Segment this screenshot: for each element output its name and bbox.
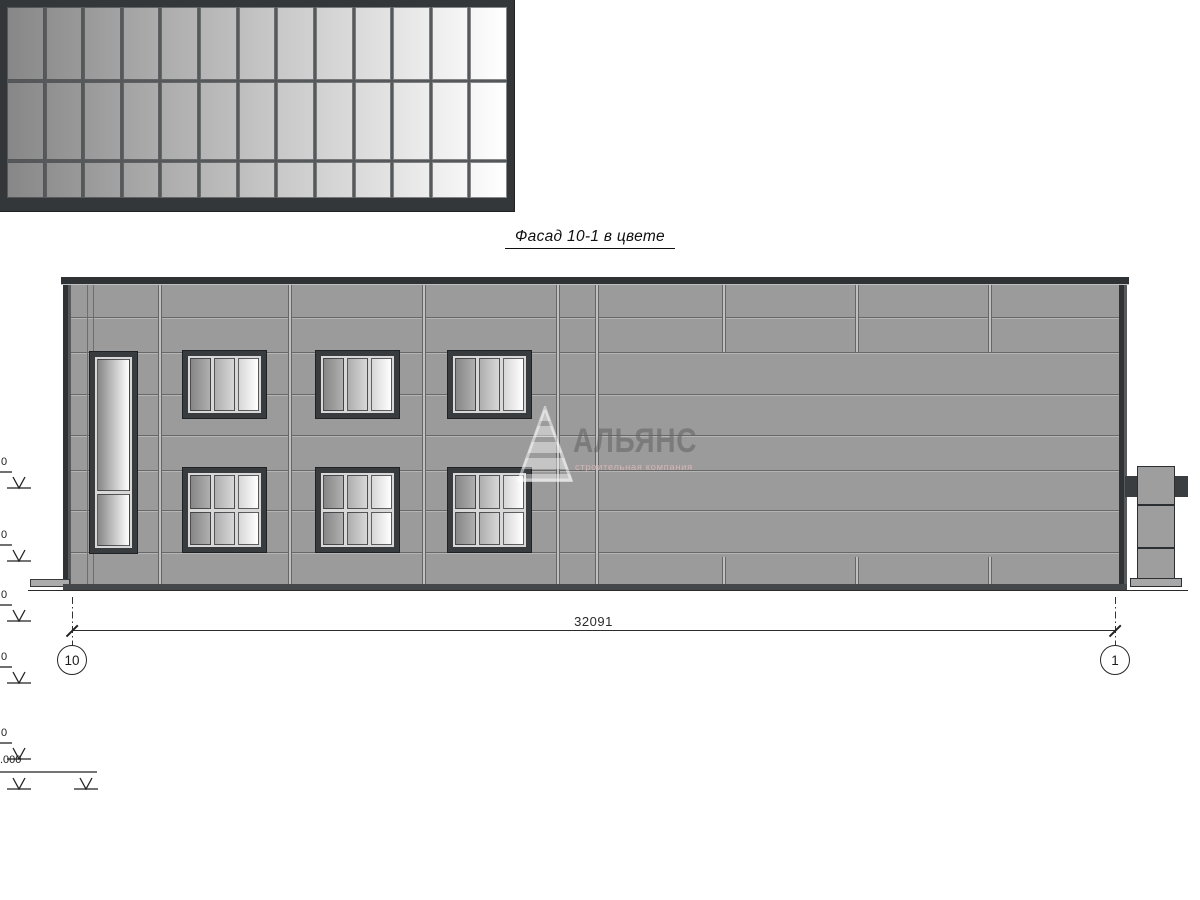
curtain-glass-pane — [7, 82, 44, 159]
glass-pane — [347, 512, 368, 546]
curtain-glass-pane — [316, 82, 353, 159]
panel-joint-vertical — [988, 557, 992, 584]
glass-pane — [238, 358, 259, 411]
panel-joint-vertical — [158, 284, 162, 584]
glass-pane — [97, 359, 130, 491]
ground-line — [28, 590, 1188, 591]
curtain-glass-pane — [46, 82, 83, 159]
curtain-glass-pane — [239, 82, 276, 159]
curtain-glass-pane — [161, 162, 198, 198]
glass-pane — [371, 358, 392, 411]
panel-joint-vertical — [722, 557, 726, 584]
glass-pane — [214, 475, 235, 509]
facade-base-strip — [63, 584, 1127, 590]
curtain-glass-pane — [123, 82, 160, 159]
window-grid — [453, 356, 526, 413]
curtain-glass-pane — [46, 7, 83, 80]
curtain-glass-pane — [277, 82, 314, 159]
glass-pane — [238, 475, 259, 509]
curtain-glass-pane — [432, 7, 469, 80]
glass-pane — [455, 475, 476, 509]
building-corner-right — [1119, 284, 1127, 584]
curtain-glass-pane — [161, 82, 198, 159]
curtain-glass-pane — [7, 162, 44, 198]
window-grid — [321, 356, 394, 413]
curtain-glass-pane — [123, 7, 160, 80]
window-grid — [453, 473, 526, 547]
building-corner-left — [63, 284, 71, 584]
curtain-glass-pane — [277, 7, 314, 80]
curtain-glass-pane — [123, 162, 160, 198]
glass-pane — [371, 512, 392, 546]
elevation-marker-left: 0 — [0, 464, 36, 492]
panel-joint-vertical — [855, 284, 859, 352]
glass-pane — [238, 512, 259, 546]
curtain-glass-pane — [46, 162, 83, 198]
glass-pane — [323, 475, 344, 509]
dimension-line — [72, 630, 1115, 631]
axis-bubble-10: 10 — [57, 645, 87, 675]
curtain-glass-pane — [470, 82, 507, 159]
curtain-glass-pane — [393, 82, 430, 159]
curtain-glass-pane — [200, 7, 237, 80]
curtain-glass-pane — [470, 162, 507, 198]
panel-joint-vertical — [556, 284, 560, 584]
curtain-glass-pane — [200, 82, 237, 159]
glass-pane — [190, 475, 211, 509]
glass-pane — [190, 512, 211, 546]
window-grid — [95, 357, 132, 548]
glass-pane — [503, 475, 524, 509]
curtain-glass-pane — [393, 7, 430, 80]
curtain-glass-pane — [84, 162, 121, 198]
curtain-glass-pane — [393, 162, 430, 198]
dimension-value: 32091 — [72, 614, 1115, 629]
window — [448, 468, 531, 552]
window-grid — [321, 473, 394, 547]
window — [183, 351, 266, 418]
window-grid — [188, 356, 261, 413]
chimney-column — [1137, 466, 1175, 583]
glass-pane — [479, 475, 500, 509]
glass-pane — [323, 358, 344, 411]
panel-joint-thin — [87, 284, 88, 584]
curtain-glass-pane — [84, 7, 121, 80]
drawing-title-wrap: Фасад 10-1 в цвете — [400, 228, 780, 249]
chimney-bracket-right — [1175, 476, 1188, 497]
glass-pane — [190, 358, 211, 411]
curtain-glass-pane — [316, 162, 353, 198]
glass-pane — [323, 512, 344, 546]
curtain-glass-pane — [316, 7, 353, 80]
glass-pane — [214, 358, 235, 411]
window — [316, 468, 399, 552]
glass-pane — [214, 512, 235, 546]
curtain-glass-pane — [84, 82, 121, 159]
curtain-glass-pane — [7, 7, 44, 80]
glass-pane — [371, 475, 392, 509]
facade-drawing-canvas: Фасад 10-1 в цвете 32091 10 1 0 0 0 0 0 … — [0, 0, 1200, 900]
window — [183, 468, 266, 552]
glass-pane — [455, 358, 476, 411]
chimney-joint — [1138, 504, 1174, 506]
chimney-joint — [1138, 547, 1174, 549]
glass-pane — [97, 494, 130, 546]
curtain-glass-pane — [239, 162, 276, 198]
parapet-coping — [61, 277, 1129, 285]
panel-joint-vertical — [988, 284, 992, 352]
curtain-glass-pane — [239, 7, 276, 80]
curtain-glass-pane — [355, 7, 392, 80]
elevation-marker-left: 0 — [0, 597, 36, 625]
glass-pane — [347, 358, 368, 411]
curtain-glass-pane — [277, 162, 314, 198]
curtain-glass-pane — [355, 82, 392, 159]
window — [448, 351, 531, 418]
panel-joint-vertical — [722, 284, 726, 352]
chimney-base — [1130, 578, 1182, 587]
panel-joint-vertical — [422, 284, 426, 584]
glass-pane — [479, 358, 500, 411]
panel-joint-vertical — [595, 284, 599, 584]
glass-pane — [503, 512, 524, 546]
elevation-marker-left: .000 — [0, 763, 102, 793]
curtain-wall-grid — [7, 7, 507, 198]
window — [90, 352, 137, 553]
elevation-marker-left: 0 — [0, 659, 36, 687]
curtain-glass-pane — [432, 162, 469, 198]
panel-joint-vertical — [855, 557, 859, 584]
glass-pane — [347, 475, 368, 509]
curtain-glass-pane — [432, 82, 469, 159]
glass-pane — [479, 512, 500, 546]
elevation-marker-left: 0 — [0, 537, 36, 565]
curtain-glass-pane — [355, 162, 392, 198]
window — [316, 351, 399, 418]
window-grid — [188, 473, 261, 547]
curtain-wall — [0, 0, 514, 211]
axis-bubble-1: 1 — [1100, 645, 1130, 675]
curtain-glass-pane — [161, 7, 198, 80]
glass-pane — [455, 512, 476, 546]
chimney-bracket-left — [1125, 476, 1137, 497]
curtain-glass-pane — [200, 162, 237, 198]
curtain-glass-pane — [470, 7, 507, 80]
panel-joint-vertical — [288, 284, 292, 584]
drawing-title: Фасад 10-1 в цвете — [505, 228, 675, 249]
glass-pane — [503, 358, 524, 411]
